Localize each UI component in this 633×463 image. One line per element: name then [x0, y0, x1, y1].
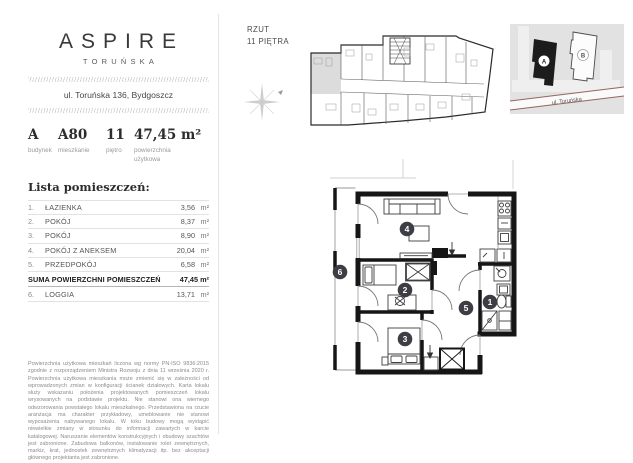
stove-icon [498, 201, 511, 216]
door-arcs [358, 194, 480, 355]
washing-machine-icon [494, 266, 510, 281]
bathroom-sink-icon [497, 284, 510, 295]
room-badge-5: 5 [459, 301, 474, 316]
info-panel: ASPIRE TORUŃSKA ul. Toruńska 136, Bydgos… [28, 0, 209, 302]
room-row-3: 3. POKÓJ 8,90 m² [28, 229, 209, 243]
building-b-marker: B [578, 50, 589, 61]
apartment-floor-plan: 1 2 3 4 5 6 [330, 158, 522, 380]
panel-separator [218, 14, 219, 434]
location-map: A B ul. Toruńska [510, 24, 624, 114]
floor-overview-plan [306, 24, 498, 144]
room-table: 1. ŁAZIENKA 3,56 m² 2. POKÓJ 8,37 m² 3. … [28, 200, 209, 302]
hall-cabinet [424, 357, 438, 370]
svg-text:1: 1 [488, 297, 493, 307]
shaft [432, 248, 448, 258]
compass-icon [240, 78, 290, 123]
shower-icon [482, 311, 497, 330]
room-badge-3: 3 [398, 332, 413, 347]
building-a-marker: A [539, 56, 550, 67]
toilet-icon [497, 295, 511, 308]
room-list-heading: Lista pomieszczeń: [28, 180, 209, 194]
desk [388, 295, 416, 310]
bed-2 [363, 265, 396, 285]
room-row-1: 1. ŁAZIENKA 3,56 m² [28, 201, 209, 215]
zigzag-divider-bottom [28, 108, 209, 113]
svg-text:A: A [542, 59, 547, 65]
hall-wardrobe-icon [440, 349, 464, 370]
sofa [384, 199, 440, 214]
nightstand [382, 357, 388, 365]
room-badge-1: 1 [483, 295, 498, 310]
svg-text:B: B [581, 53, 586, 59]
bathroom-cabinet [499, 311, 511, 330]
project-address: ul. Toruńska 136, Bydgoszcz [28, 90, 209, 100]
legal-disclaimer: Powierzchnia użytkowa mieszkań liczona w… [28, 361, 209, 463]
floor-plan-title-line1: RZUT [247, 24, 289, 36]
room-row-loggia: 6. LOGGIA 13,71 m² [28, 287, 209, 301]
north-arrow-icon [278, 90, 283, 95]
svg-text:4: 4 [405, 224, 410, 234]
kitchen-sink-icon [498, 231, 511, 244]
room-badge-2: 2 [398, 283, 413, 298]
floor-plan-title: RZUT 11 PIĘTRA [247, 24, 289, 48]
sideboard [400, 253, 432, 259]
brand-logo: ASPIRE [28, 30, 209, 54]
svg-text:5: 5 [464, 303, 469, 313]
room-row-5: 5. PRZEDPOKÓJ 6,58 m² [28, 258, 209, 272]
wardrobe-icon [406, 264, 430, 281]
sum-row: SUMA POWIERZCHNI POMIESZCZEŃ 47,45 m² [28, 272, 209, 288]
dishwasher-icon [498, 218, 511, 229]
bedroom2-furniture [363, 264, 430, 311]
svg-text:2: 2 [403, 285, 408, 295]
unit-floor: 11 piętro [106, 127, 134, 164]
kitchen [480, 197, 511, 263]
room-badge-6: 6 [333, 265, 348, 280]
shaft-wall [432, 261, 437, 275]
zigzag-divider-top [28, 77, 209, 82]
counter-cabinets [480, 249, 511, 262]
room-badge-4: 4 [400, 222, 415, 237]
unit-building: A budynek [28, 127, 58, 164]
room-row-2: 2. POKÓJ 8,37 m² [28, 215, 209, 229]
unit-info-row: A budynek A80 mieszkanie 11 piętro 47,45… [28, 127, 209, 164]
stair-core [390, 38, 410, 64]
brand-subtitle: TORUŃSKA [28, 57, 209, 66]
svg-text:3: 3 [403, 334, 408, 344]
svg-text:6: 6 [338, 267, 343, 277]
room-row-4: 4. POKÓJ Z ANEKSEM 20,04 m² [28, 244, 209, 258]
floor-plan-title-line2: 11 PIĘTRA [247, 36, 289, 48]
unit-area: 47,45 m² powierzchnia użytkowa [134, 127, 209, 164]
unit-apartment: A80 mieszkanie [58, 127, 106, 164]
